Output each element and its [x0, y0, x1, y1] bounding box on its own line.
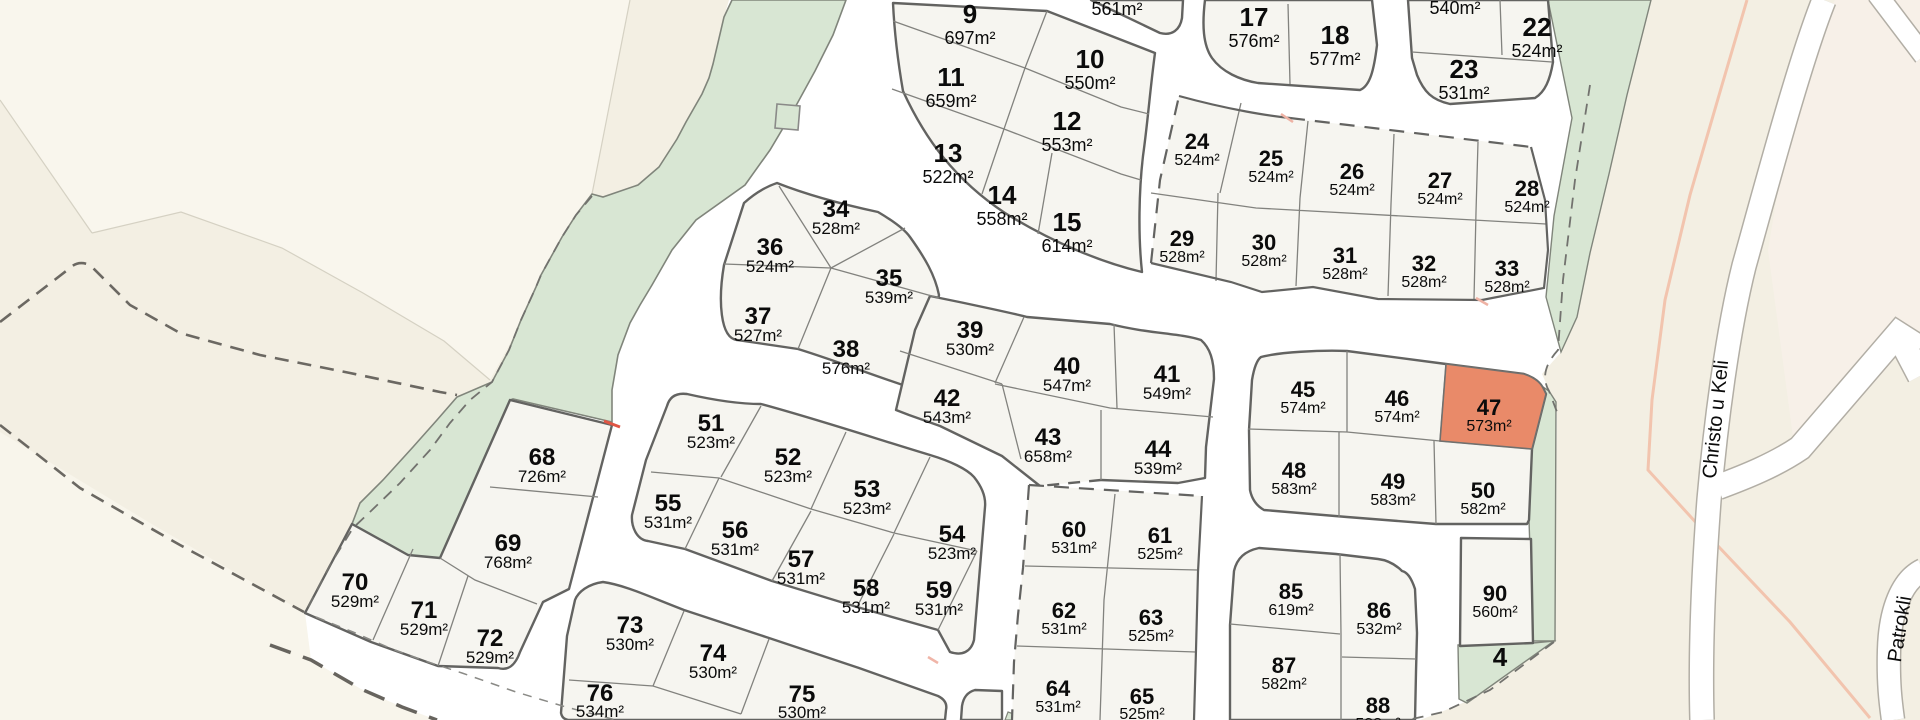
- svg-text:524m²: 524m²: [1329, 182, 1375, 199]
- svg-text:574m²: 574m²: [1280, 400, 1326, 417]
- svg-text:60: 60: [1062, 517, 1086, 542]
- svg-text:22: 22: [1523, 12, 1552, 42]
- svg-text:531m²: 531m²: [711, 540, 760, 559]
- svg-text:25: 25: [1259, 146, 1283, 171]
- svg-text:527m²: 527m²: [734, 326, 783, 345]
- svg-text:531m²: 531m²: [644, 513, 693, 532]
- svg-text:560m²: 560m²: [1472, 604, 1518, 621]
- svg-text:528m²: 528m²: [1322, 266, 1368, 283]
- svg-text:61: 61: [1148, 523, 1172, 548]
- svg-text:619m²: 619m²: [1268, 602, 1314, 619]
- svg-text:524m²: 524m²: [1504, 199, 1550, 216]
- svg-text:26: 26: [1340, 159, 1364, 184]
- svg-text:17: 17: [1240, 2, 1269, 32]
- svg-text:62: 62: [1052, 598, 1076, 623]
- svg-text:530m²: 530m²: [689, 663, 738, 682]
- svg-text:539m²: 539m²: [1134, 459, 1183, 478]
- svg-text:15: 15: [1053, 207, 1082, 237]
- svg-text:538m²: 538m²: [1355, 716, 1401, 720]
- svg-text:530m²: 530m²: [778, 703, 827, 720]
- svg-text:85: 85: [1279, 579, 1303, 604]
- svg-text:550m²: 550m²: [1064, 73, 1115, 93]
- svg-text:576m²: 576m²: [822, 359, 871, 378]
- svg-text:529m²: 529m²: [400, 620, 449, 639]
- svg-text:10: 10: [1076, 44, 1105, 74]
- svg-text:32: 32: [1412, 251, 1436, 276]
- svg-text:523m²: 523m²: [843, 499, 892, 518]
- svg-text:90: 90: [1483, 581, 1507, 606]
- svg-text:531m²: 531m²: [1035, 699, 1081, 716]
- svg-text:529m²: 529m²: [331, 592, 380, 611]
- svg-text:582m²: 582m²: [1261, 676, 1307, 693]
- svg-text:9: 9: [963, 0, 977, 29]
- svg-text:24: 24: [1185, 129, 1210, 154]
- svg-text:528m²: 528m²: [1401, 274, 1447, 291]
- svg-text:583m²: 583m²: [1271, 481, 1317, 498]
- svg-text:553m²: 553m²: [1041, 135, 1092, 155]
- svg-text:525m²: 525m²: [1137, 546, 1183, 563]
- svg-text:558m²: 558m²: [976, 209, 1027, 229]
- svg-text:528m²: 528m²: [1484, 279, 1530, 296]
- svg-text:549m²: 549m²: [1143, 384, 1192, 403]
- svg-text:540m²: 540m²: [1429, 0, 1480, 18]
- svg-text:583m²: 583m²: [1370, 492, 1416, 509]
- svg-text:524m²: 524m²: [1511, 41, 1562, 61]
- svg-text:30: 30: [1252, 230, 1276, 255]
- svg-text:14: 14: [988, 180, 1017, 210]
- svg-text:530m²: 530m²: [606, 635, 655, 654]
- svg-text:28: 28: [1515, 176, 1539, 201]
- svg-text:528m²: 528m²: [1159, 249, 1205, 266]
- svg-text:529m²: 529m²: [466, 648, 515, 667]
- svg-text:614m²: 614m²: [1041, 236, 1092, 256]
- svg-text:573m²: 573m²: [1466, 418, 1512, 435]
- svg-text:574m²: 574m²: [1374, 409, 1420, 426]
- svg-text:29: 29: [1170, 226, 1194, 251]
- svg-text:658m²: 658m²: [1024, 447, 1073, 466]
- svg-text:659m²: 659m²: [925, 91, 976, 111]
- svg-text:27: 27: [1428, 168, 1452, 193]
- svg-text:88: 88: [1366, 693, 1390, 718]
- svg-text:86: 86: [1367, 598, 1391, 623]
- svg-text:531m²: 531m²: [915, 600, 964, 619]
- svg-text:18: 18: [1321, 20, 1350, 50]
- svg-text:523m²: 523m²: [687, 433, 736, 452]
- svg-text:524m²: 524m²: [746, 257, 795, 276]
- svg-text:12: 12: [1053, 106, 1082, 136]
- svg-text:531m²: 531m²: [1041, 621, 1087, 638]
- svg-text:561m²: 561m²: [1091, 0, 1142, 19]
- svg-text:11: 11: [937, 62, 965, 92]
- svg-text:523m²: 523m²: [928, 544, 977, 563]
- svg-text:522m²: 522m²: [922, 167, 973, 187]
- svg-text:697m²: 697m²: [944, 28, 995, 48]
- svg-text:524m²: 524m²: [1248, 169, 1294, 186]
- svg-text:532m²: 532m²: [1356, 621, 1402, 638]
- svg-text:13: 13: [934, 138, 963, 168]
- svg-text:31: 31: [1333, 243, 1357, 268]
- svg-text:525m²: 525m²: [1128, 628, 1174, 645]
- svg-text:534m²: 534m²: [576, 702, 625, 720]
- svg-text:531m²: 531m²: [1438, 83, 1489, 103]
- svg-text:582m²: 582m²: [1460, 501, 1506, 518]
- svg-text:768m²: 768m²: [484, 553, 533, 572]
- svg-text:523m²: 523m²: [764, 467, 813, 486]
- svg-text:525m²: 525m²: [1119, 706, 1165, 720]
- svg-text:543m²: 543m²: [923, 408, 972, 427]
- svg-text:524m²: 524m²: [1174, 152, 1220, 169]
- svg-text:528m²: 528m²: [812, 219, 861, 238]
- svg-text:87: 87: [1272, 653, 1296, 678]
- svg-text:45: 45: [1291, 377, 1315, 402]
- svg-text:531m²: 531m²: [777, 569, 826, 588]
- svg-text:47: 47: [1477, 395, 1501, 420]
- svg-text:576m²: 576m²: [1228, 31, 1279, 51]
- svg-text:726m²: 726m²: [518, 467, 567, 486]
- svg-text:64: 64: [1046, 676, 1071, 701]
- svg-text:4: 4: [1493, 642, 1508, 672]
- svg-text:547m²: 547m²: [1043, 376, 1092, 395]
- svg-text:46: 46: [1385, 386, 1409, 411]
- svg-text:23: 23: [1450, 54, 1479, 84]
- svg-text:49: 49: [1381, 469, 1405, 494]
- svg-text:63: 63: [1139, 605, 1163, 630]
- svg-text:50: 50: [1471, 478, 1495, 503]
- svg-text:531m²: 531m²: [1051, 540, 1097, 557]
- svg-text:528m²: 528m²: [1241, 253, 1287, 270]
- svg-text:539m²: 539m²: [865, 288, 914, 307]
- svg-text:48: 48: [1282, 458, 1306, 483]
- svg-text:530m²: 530m²: [946, 340, 995, 359]
- svg-text:531m²: 531m²: [842, 598, 891, 617]
- svg-text:33: 33: [1495, 256, 1519, 281]
- svg-text:524m²: 524m²: [1417, 191, 1463, 208]
- svg-text:577m²: 577m²: [1309, 49, 1360, 69]
